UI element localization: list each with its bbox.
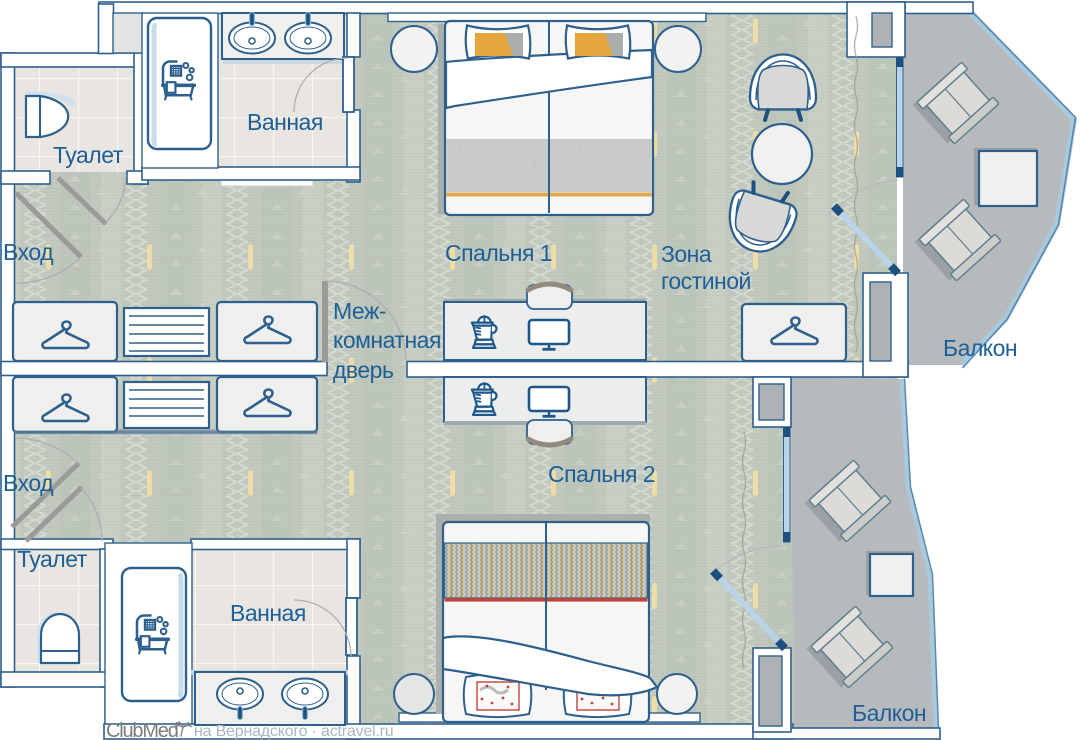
svg-text:дверь: дверь	[333, 357, 394, 383]
svg-text:Балкон: Балкон	[943, 335, 1017, 361]
svg-text:гостиной: гостиной	[661, 268, 751, 294]
svg-text:Ванная: Ванная	[247, 109, 323, 135]
svg-text:ClubMed: ClubMed	[106, 720, 178, 740]
svg-text:Меж-: Меж-	[333, 298, 386, 324]
svg-text:Вход: Вход	[3, 239, 54, 265]
svg-text:Спальня 1: Спальня 1	[445, 240, 552, 266]
svg-text:Вход: Вход	[3, 470, 54, 496]
svg-text:Туалет: Туалет	[17, 546, 88, 572]
svg-text:на Вернадского · actravel.ru: на Вернадского · actravel.ru	[194, 723, 394, 740]
svg-text:комнатная: комнатная	[333, 327, 441, 353]
svg-text:Балкон: Балкон	[852, 700, 926, 726]
svg-text:Зона: Зона	[661, 241, 712, 267]
svg-text:Спальня 2: Спальня 2	[548, 461, 655, 487]
svg-text:Ванная: Ванная	[230, 600, 306, 626]
svg-text:Туалет: Туалет	[53, 142, 124, 168]
